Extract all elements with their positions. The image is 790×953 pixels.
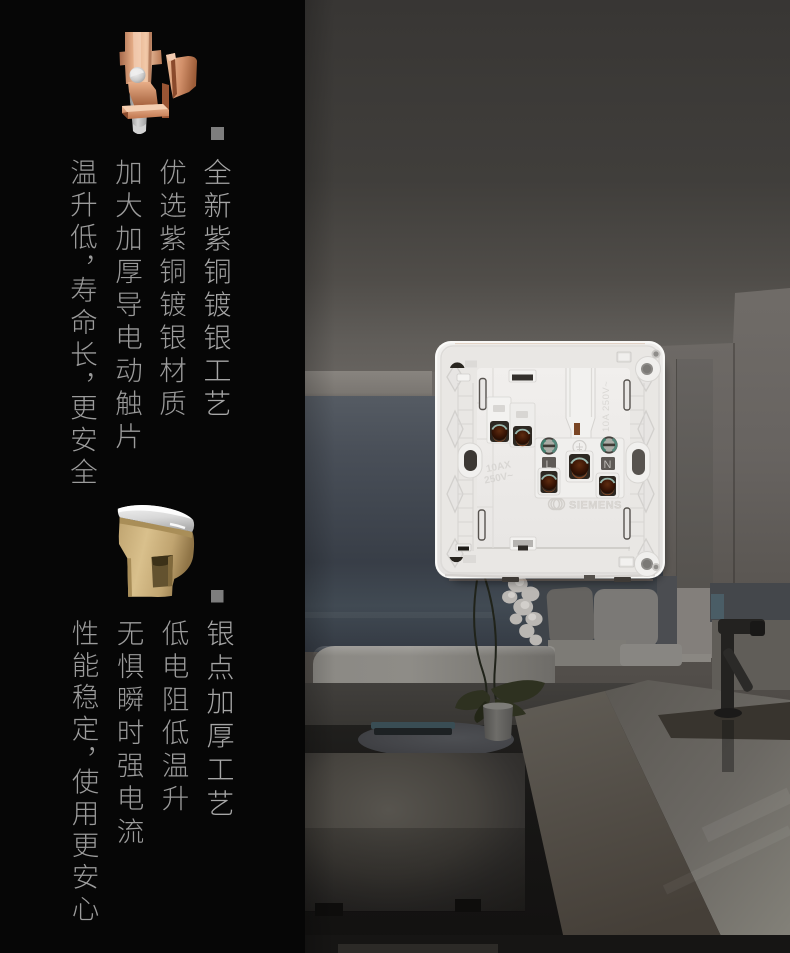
svg-text:10A 250V~: 10A 250V~ [601, 381, 612, 432]
svg-text:SIEMENS: SIEMENS [569, 500, 622, 512]
svg-text:N: N [604, 459, 612, 471]
